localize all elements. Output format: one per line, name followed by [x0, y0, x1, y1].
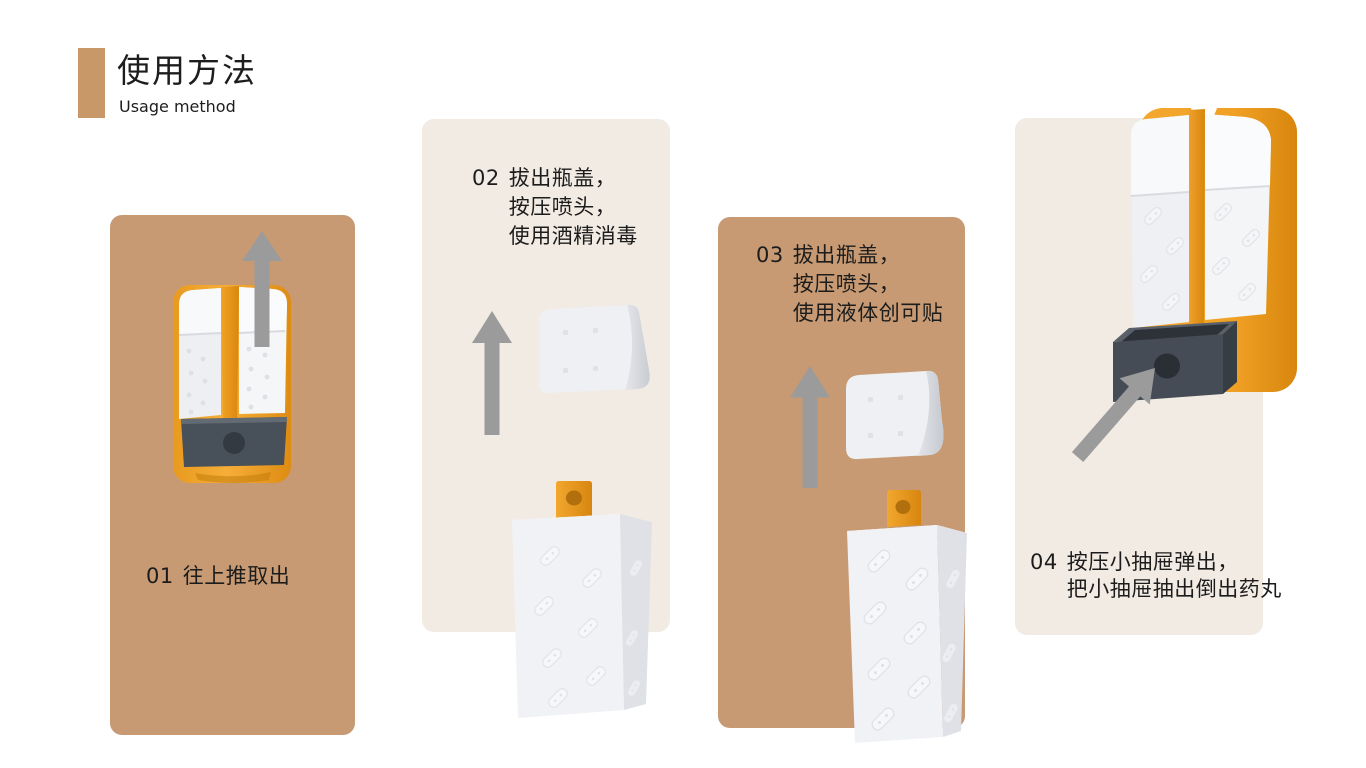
up-arrow-icon [790, 366, 830, 488]
step-2-caption: 02 拔出瓶盖， 按压喷头， 使用酒精消毒 [472, 164, 638, 251]
spray-bottle-illustration [508, 478, 656, 718]
step-number: 01 [146, 562, 174, 591]
step-text-line: 按压喷头， [793, 270, 944, 299]
page-title: 使用方法 [117, 50, 257, 92]
dispenser-open-drawer-illustration [1105, 106, 1301, 406]
step-text-line: 使用酒精消毒 [509, 222, 638, 251]
bottle-cap-illustration [838, 367, 964, 464]
step-text-line: 往上推取出 [183, 562, 291, 591]
step-text-line: 按压喷头， [509, 193, 638, 222]
step-text-line: 使用液体创可贴 [793, 299, 944, 328]
diagonal-up-right-arrow-icon [1058, 362, 1170, 474]
step-number: 03 [756, 241, 784, 328]
step-text-line: 拔出瓶盖， [793, 241, 944, 270]
up-arrow-icon [472, 311, 512, 435]
title-accent-bar [78, 48, 105, 118]
step-number: 02 [472, 164, 500, 251]
step-4-caption: 04 按压小抽屉弹出， 把小抽屉抽出倒出药丸 [1030, 549, 1282, 603]
step-3-caption: 03 拔出瓶盖， 按压喷头， 使用液体创可贴 [756, 241, 943, 328]
bottle-cap-illustration [531, 302, 661, 396]
step-text-line: 拔出瓶盖， [509, 164, 638, 193]
step-text-line: 把小抽屉抽出倒出药丸 [1067, 576, 1282, 603]
step-text-line: 按压小抽屉弹出， [1067, 549, 1282, 576]
up-arrow-icon [242, 231, 282, 347]
step-1-caption: 01 往上推取出 [146, 562, 290, 591]
step-number: 04 [1030, 549, 1058, 603]
spray-bottle-illustration [845, 487, 973, 745]
usage-method-page: { "title": { "zh": "使用方法", "en": "Usage … [0, 0, 1366, 768]
page-subtitle: Usage method [119, 97, 236, 117]
